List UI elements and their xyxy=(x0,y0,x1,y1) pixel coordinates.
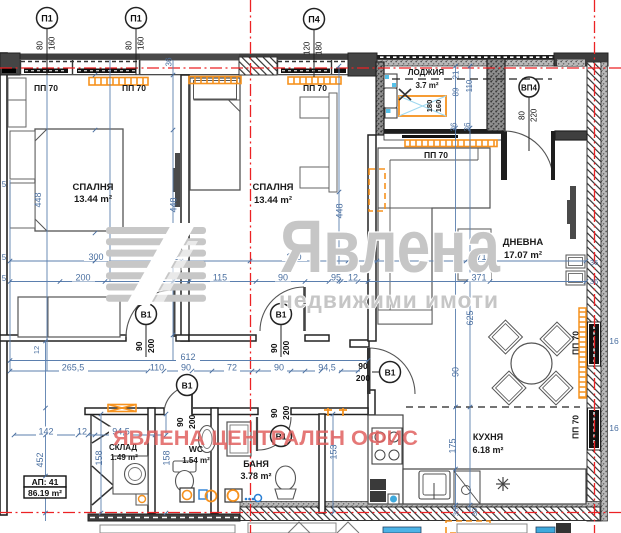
svg-text:ЛОДЖИЯ: ЛОДЖИЯ xyxy=(408,68,444,77)
svg-text:ПП 70: ПП 70 xyxy=(571,331,581,355)
svg-text:72: 72 xyxy=(227,363,237,373)
svg-text:В1: В1 xyxy=(141,310,152,320)
svg-text:П1: П1 xyxy=(41,14,52,24)
svg-text:ЯВЛЕНА ЦЕНТРАЛЕН ОФИС: ЯВЛЕНА ЦЕНТРАЛЕН ОФИС xyxy=(113,427,418,450)
svg-text:448: 448 xyxy=(33,192,43,207)
svg-text:БАНЯ: БАНЯ xyxy=(243,459,269,469)
svg-text:160: 160 xyxy=(48,36,57,50)
svg-text:КУХНЯ: КУХНЯ xyxy=(473,432,503,442)
svg-text:90: 90 xyxy=(274,363,284,373)
svg-text:90: 90 xyxy=(175,417,185,427)
svg-text:1.54 m²: 1.54 m² xyxy=(182,456,210,465)
svg-text:6.18 m²: 6.18 m² xyxy=(472,445,503,455)
svg-text:АП: 41: АП: 41 xyxy=(32,477,59,487)
svg-text:Явлена: Явлена xyxy=(280,205,501,288)
svg-text:ПП 70: ПП 70 xyxy=(571,415,581,439)
svg-text:16: 16 xyxy=(609,336,619,346)
svg-text:110: 110 xyxy=(465,79,474,92)
svg-text:200: 200 xyxy=(75,273,90,283)
svg-text:П1: П1 xyxy=(130,14,141,24)
svg-text:30: 30 xyxy=(470,508,479,516)
svg-text:80: 80 xyxy=(518,111,527,120)
svg-text:115: 115 xyxy=(213,273,227,283)
svg-text:36: 36 xyxy=(590,258,598,267)
svg-text:ВП4: ВП4 xyxy=(521,84,538,93)
svg-text:180: 180 xyxy=(425,100,434,113)
svg-text:3.78 m²: 3.78 m² xyxy=(240,471,271,481)
svg-text:89: 89 xyxy=(452,87,461,96)
svg-text:ПП 70: ПП 70 xyxy=(34,83,58,93)
svg-text:90: 90 xyxy=(134,341,144,351)
svg-text:110: 110 xyxy=(150,363,164,373)
svg-text:200: 200 xyxy=(356,373,370,383)
svg-text:120: 120 xyxy=(303,41,312,55)
svg-text:80: 80 xyxy=(125,41,134,50)
svg-text:36: 36 xyxy=(590,277,598,286)
svg-text:П4: П4 xyxy=(308,15,319,25)
svg-text:90: 90 xyxy=(269,343,279,353)
svg-text:175: 175 xyxy=(448,438,458,453)
svg-text:448: 448 xyxy=(169,197,179,212)
svg-text:158: 158 xyxy=(94,450,104,465)
svg-text:80: 80 xyxy=(36,41,45,50)
svg-text:13.44 m²: 13.44 m² xyxy=(74,194,112,205)
svg-text:3.7 m²: 3.7 m² xyxy=(415,81,438,90)
svg-text:12: 12 xyxy=(32,346,41,354)
svg-text:86.19 m²: 86.19 m² xyxy=(28,488,62,498)
svg-text:ДНЕВНА: ДНЕВНА xyxy=(503,237,544,248)
svg-text:СПАЛНЯ: СПАЛНЯ xyxy=(252,182,293,193)
svg-text:30: 30 xyxy=(452,508,461,516)
svg-text:200: 200 xyxy=(281,341,291,355)
svg-text:265,5: 265,5 xyxy=(62,363,85,373)
svg-text:ПП 70: ПП 70 xyxy=(303,83,327,93)
svg-text:200: 200 xyxy=(146,339,156,353)
svg-text:17.07 m²: 17.07 m² xyxy=(504,250,542,261)
svg-text:недвижими имоти: недвижими имоти xyxy=(279,287,499,313)
svg-text:90: 90 xyxy=(451,367,461,377)
svg-text:200: 200 xyxy=(281,406,291,420)
svg-text:90: 90 xyxy=(181,363,191,373)
svg-text:СПАЛНЯ: СПАЛНЯ xyxy=(72,182,113,193)
svg-text:452: 452 xyxy=(35,452,45,467)
svg-text:5: 5 xyxy=(2,180,7,189)
svg-text:В1: В1 xyxy=(182,381,193,391)
svg-text:36: 36 xyxy=(165,57,174,66)
svg-text:90: 90 xyxy=(269,408,279,418)
svg-text:180: 180 xyxy=(315,41,324,55)
svg-text:1.49 m²: 1.49 m² xyxy=(110,453,138,462)
svg-text:5: 5 xyxy=(2,253,7,262)
svg-text:158: 158 xyxy=(162,450,172,465)
svg-text:21: 21 xyxy=(452,70,461,79)
svg-text:612: 612 xyxy=(180,352,195,362)
svg-text:16: 16 xyxy=(609,423,619,433)
svg-text:160: 160 xyxy=(137,36,146,50)
svg-text:В1: В1 xyxy=(385,368,396,378)
svg-text:220: 220 xyxy=(530,108,539,122)
svg-text:5: 5 xyxy=(2,274,7,283)
svg-text:ПП 70: ПП 70 xyxy=(122,83,146,93)
svg-text:160: 160 xyxy=(434,100,443,113)
svg-text:ПП 70: ПП 70 xyxy=(424,150,448,160)
